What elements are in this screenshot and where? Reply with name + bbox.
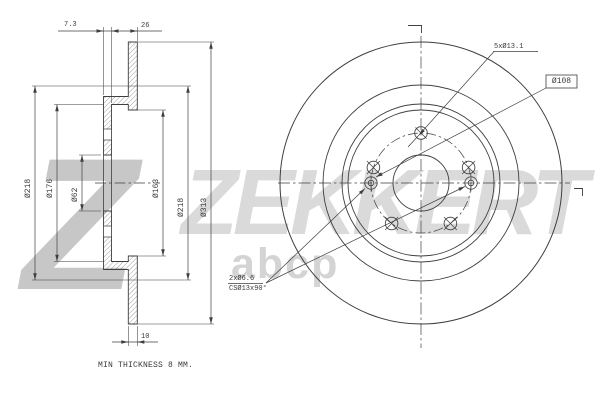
dia-label-62: Ø62: [71, 188, 80, 202]
dim-label-hat-thickness: 7.3: [64, 21, 77, 30]
dim-label-overall-height: 26: [141, 22, 149, 31]
section-view: [32, 27, 214, 346]
bolt-circle-callout: Ø108: [546, 77, 577, 86]
extension-lines: [32, 27, 214, 346]
front-view: [228, 26, 583, 349]
drawing-sheet: Z ZEKKERT abcp: [0, 0, 600, 400]
dia-label-218-left: Ø218: [24, 179, 33, 198]
min-thickness-note: MIN THICKNESS 8 MM.: [98, 361, 193, 370]
bolt-holes-callout: 5xØ13.1: [494, 43, 523, 52]
set-screw-callout: 2xØ6.6: [229, 275, 254, 284]
stud-hole-section-lower: [104, 226, 112, 237]
drawing-linework: [0, 0, 600, 400]
dia-label-313: Ø313: [200, 198, 209, 217]
dia-label-218-right: Ø218: [177, 198, 186, 217]
dia-label-176: Ø176: [46, 179, 55, 198]
dim-label-disc-thickness: 10: [141, 333, 149, 342]
leader-lines: [228, 52, 577, 284]
countersink-callout: CSØ13x90°: [229, 285, 267, 294]
dia-label-163: Ø163: [152, 179, 161, 198]
stud-hole-section-upper: [104, 129, 112, 140]
